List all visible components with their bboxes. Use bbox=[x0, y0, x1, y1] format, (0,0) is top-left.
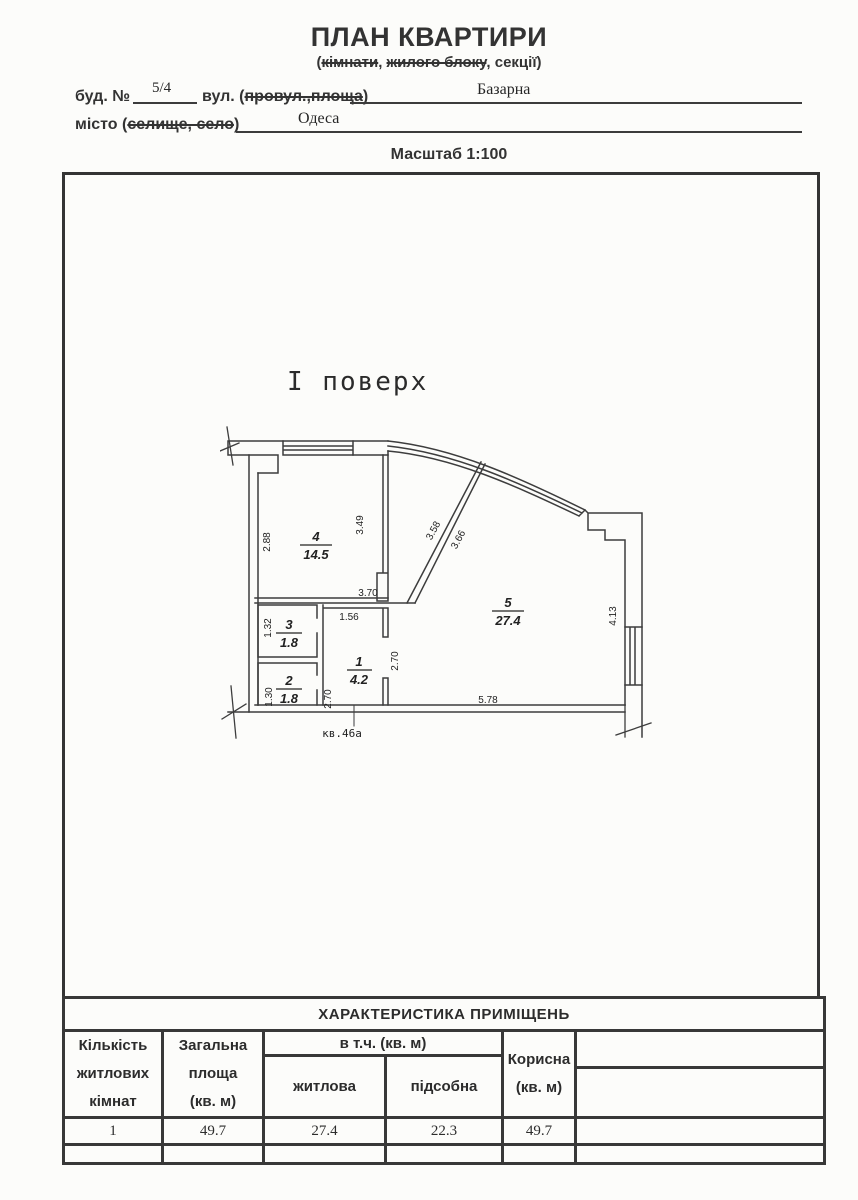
dim-room1-height: 2.70 bbox=[323, 689, 334, 709]
room4-label: 4 14.5 bbox=[300, 529, 332, 562]
value-utility-area: 22.3 bbox=[386, 1118, 503, 1145]
svg-text:5: 5 bbox=[504, 595, 512, 610]
break-mark-top-left bbox=[220, 427, 239, 465]
dim-room5-right: 4.13 bbox=[608, 606, 619, 626]
subtitle-struck-block: жилого блоку bbox=[387, 54, 487, 71]
svg-text:4: 4 bbox=[311, 529, 320, 544]
value-total-area: 49.7 bbox=[163, 1118, 264, 1145]
city-label-struck: селище, село bbox=[127, 116, 234, 133]
street-label-struck: провул.,площа bbox=[245, 88, 363, 105]
column-header-including: в т.ч. (кв. м) bbox=[264, 1031, 503, 1056]
svg-text:2: 2 bbox=[284, 673, 293, 688]
value-living-area: 27.4 bbox=[264, 1118, 386, 1145]
value-useful-area: 49.7 bbox=[503, 1118, 576, 1145]
balcony-arc-wall bbox=[388, 441, 585, 516]
notes-cell-bottom bbox=[576, 1068, 825, 1118]
column-header-utility: підсобна bbox=[386, 1056, 503, 1118]
column-header-room-count: Кількість житлових кімнат bbox=[64, 1031, 163, 1118]
dim-left-wall: 2.88 bbox=[262, 532, 273, 552]
svg-text:1.8: 1.8 bbox=[280, 691, 299, 706]
svg-text:14.5: 14.5 bbox=[303, 547, 329, 562]
room4-bottom-wall bbox=[255, 598, 415, 603]
value-notes-empty bbox=[576, 1118, 825, 1145]
page-subtitle: (кімнати, жилого блоку, секції) bbox=[0, 54, 858, 71]
dim-room1-width: 1.56 bbox=[339, 612, 359, 623]
break-mark-bottom-right bbox=[616, 705, 651, 737]
room4-right-wall bbox=[377, 451, 388, 601]
top-window bbox=[283, 441, 353, 455]
room5-label: 5 27.4 bbox=[492, 595, 524, 628]
floor-plan-drawing: 2.88 3.49 3.70 3.58 3.66 1.32 1.30 1.56 … bbox=[220, 420, 660, 765]
notes-cell-top bbox=[576, 1031, 825, 1068]
svg-text:4.2: 4.2 bbox=[349, 672, 369, 687]
column-header-useful-area: Корисна (кв. м) bbox=[503, 1031, 576, 1118]
street-underline bbox=[350, 88, 802, 104]
dim-room2-height: 1.30 bbox=[264, 687, 275, 707]
room2-label: 2 1.8 bbox=[276, 673, 302, 706]
svg-text:1.8: 1.8 bbox=[280, 635, 299, 650]
city-value: Одеса bbox=[298, 110, 339, 128]
city-label: місто (селище, село) bbox=[75, 116, 239, 134]
floor-label: І поверх bbox=[287, 367, 428, 397]
plan-frame: І поверх bbox=[62, 172, 820, 1165]
table-title: ХАРАКТЕРИСТИКА ПРИМІЩЕНЬ bbox=[64, 998, 825, 1031]
dim-room5-left: 2.70 bbox=[390, 651, 401, 671]
building-number-value: 5/4 bbox=[152, 80, 171, 97]
dim-room5-bottom: 5.78 bbox=[478, 695, 498, 706]
left-wall bbox=[249, 455, 258, 712]
dim-room4-right: 3.49 bbox=[355, 515, 366, 535]
right-window bbox=[625, 627, 642, 685]
street-value: Базарна bbox=[477, 81, 530, 99]
diagonal-wall bbox=[407, 462, 485, 603]
apartment-number-label: кв.46а bbox=[322, 727, 362, 740]
value-room-count: 1 bbox=[64, 1118, 163, 1145]
dim-room3-height: 1.32 bbox=[263, 618, 274, 638]
bottom-wall bbox=[228, 705, 625, 712]
svg-text:1: 1 bbox=[355, 654, 362, 669]
dim-diag-inner: 3.66 bbox=[449, 528, 468, 551]
subtitle-struck-rooms: кімнати bbox=[321, 54, 378, 71]
svg-text:3: 3 bbox=[285, 617, 293, 632]
street-label: вул. (провул.,площа) bbox=[202, 88, 368, 106]
column-header-total-area: Загальна площа (кв. м) bbox=[163, 1031, 264, 1118]
page-title: ПЛАН КВАРТИРИ bbox=[0, 22, 858, 53]
svg-text:27.4: 27.4 bbox=[494, 613, 521, 628]
building-number-label: буд. № bbox=[75, 88, 130, 106]
dim-room4-width: 3.70 bbox=[358, 588, 378, 599]
scale-label: Масштаб 1:100 bbox=[0, 146, 858, 164]
scanned-apartment-plan-page: ПЛАН КВАРТИРИ (кімнати, жилого блоку, се… bbox=[0, 0, 858, 1200]
characteristics-table: ХАРАКТЕРИСТИКА ПРИМІЩЕНЬ Кількість житло… bbox=[62, 996, 826, 1165]
room1-label: 1 4.2 bbox=[347, 654, 372, 687]
room3-label: 3 1.8 bbox=[276, 617, 302, 650]
column-header-living: житлова bbox=[264, 1056, 386, 1118]
